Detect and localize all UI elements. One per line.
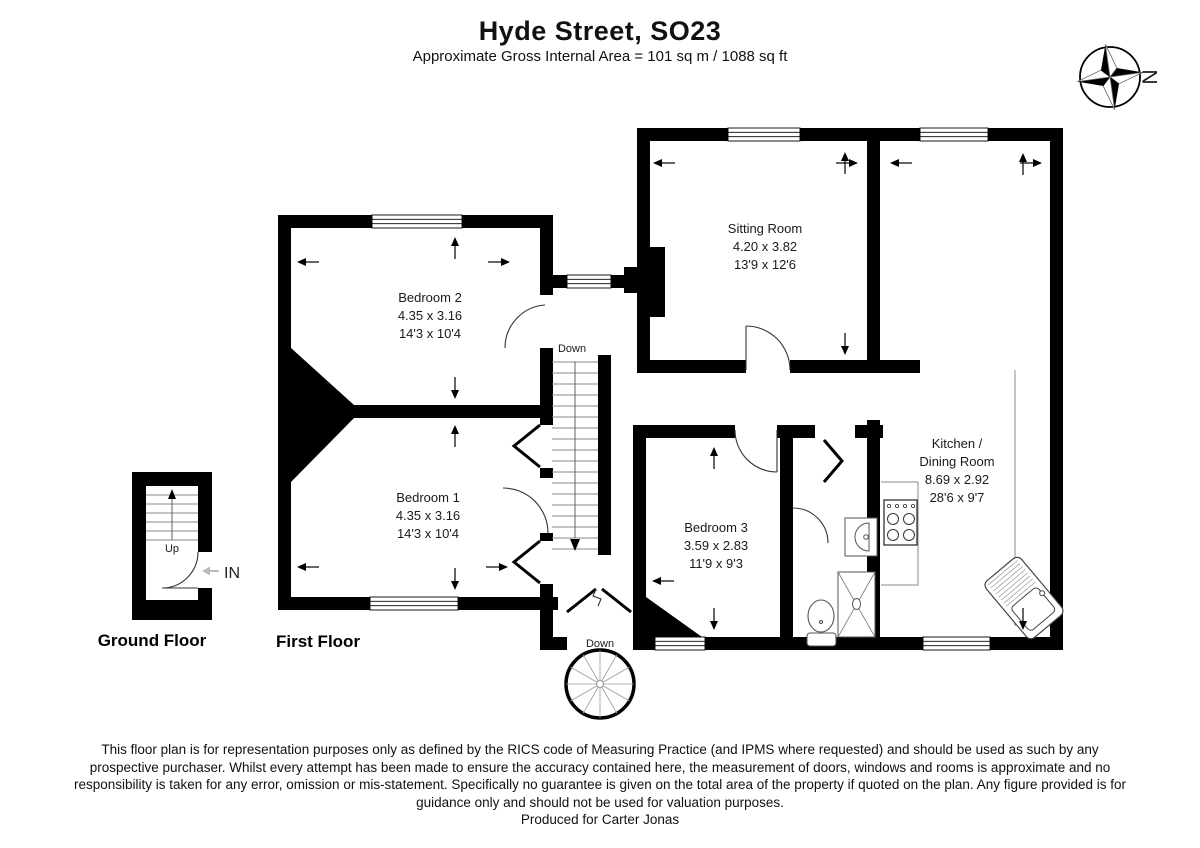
floorplan-page: Hyde Street, SO23 Approximate Gross Inte…	[0, 0, 1200, 848]
ground-stairs-up-label: Up	[165, 543, 179, 555]
window-icon	[567, 275, 611, 288]
measure-arrow-icon	[451, 237, 459, 259]
window-icon	[655, 637, 705, 650]
room-name-2: Dining Room	[919, 454, 994, 469]
floorplan-drawing: N Up IN Ground Floor	[0, 0, 1200, 848]
measure-arrow-icon	[451, 568, 459, 590]
room-imperial: 14'3 x 10'4	[397, 526, 459, 541]
bedroom2-door	[505, 305, 545, 348]
compass-icon: N	[1073, 40, 1161, 115]
wc-door	[793, 508, 828, 543]
window-icon	[923, 637, 990, 650]
entry-down-label: Down	[586, 638, 614, 650]
entrance-label: IN	[224, 565, 240, 582]
room-name: Bedroom 2	[398, 290, 462, 305]
measure-arrow-icon	[710, 447, 718, 469]
room-label-sitting-room: Sitting Room 4.20 x 3.82 13'9 x 12'6	[728, 221, 802, 272]
producer-text: Produced for Carter Jonas	[72, 811, 1128, 829]
room-label-bedroom-2: Bedroom 2 4.35 x 3.16 14'3 x 10'4	[398, 290, 462, 341]
stairs-down-label: Down	[558, 343, 586, 355]
room-metric: 8.69 x 2.92	[925, 472, 989, 487]
window-icon	[372, 215, 462, 228]
windows	[370, 128, 990, 650]
room-metric: 4.35 x 3.16	[398, 308, 462, 323]
first-floor-label: First Floor	[276, 632, 360, 651]
footer: This floor plan is for representation pu…	[72, 741, 1128, 829]
room-imperial: 28'6 x 9'7	[930, 490, 985, 505]
room-name: Bedroom 1	[396, 490, 460, 505]
measure-arrow-icon	[451, 425, 459, 447]
room-label-kitchen-dining: Kitchen / Dining Room 8.69 x 2.92 28'6 x…	[919, 436, 994, 505]
first-floor-walls	[278, 128, 1063, 650]
entrance-in-arrow-icon	[202, 567, 219, 576]
measure-arrow-icon	[841, 333, 849, 355]
room-metric: 4.20 x 3.82	[733, 239, 797, 254]
spiral-staircase	[566, 650, 634, 718]
room-name: Bedroom 3	[684, 520, 748, 535]
toilet-icon	[807, 600, 836, 646]
entrance-door	[162, 552, 198, 588]
room-metric: 3.59 x 2.83	[684, 538, 748, 553]
measure-arrow-icon	[890, 159, 912, 167]
shower-icon	[838, 572, 875, 637]
entry-double-doors	[567, 589, 631, 612]
disclaimer-text: This floor plan is for representation pu…	[72, 741, 1128, 811]
room-label-bedroom-1: Bedroom 1 4.35 x 3.16 14'3 x 10'4	[396, 490, 460, 541]
measure-arrow-icon	[451, 377, 459, 399]
measure-arrow-icon	[297, 563, 319, 571]
measure-arrow-icon	[653, 159, 675, 167]
room-name: Sitting Room	[728, 221, 802, 236]
room-imperial: 14'3 x 10'4	[399, 326, 461, 341]
window-icon	[370, 597, 458, 610]
room-imperial: 11'9 x 9'3	[689, 556, 743, 571]
room-imperial: 13'9 x 12'6	[734, 257, 796, 272]
measure-arrow-icon	[488, 258, 510, 266]
measure-arrow-icon	[486, 563, 508, 571]
sitting-room-door	[746, 326, 790, 370]
measure-arrow-icon	[652, 577, 674, 585]
washbasin-icon	[845, 518, 877, 556]
ground-floor-label: Ground Floor	[98, 631, 207, 650]
window-icon	[728, 128, 800, 141]
measure-arrow-icon	[710, 608, 718, 630]
measure-arrow-icon	[1019, 153, 1027, 175]
compass-north-label: N	[1138, 69, 1161, 84]
room-name: Kitchen /	[932, 436, 983, 451]
room-label-bedroom-3: Bedroom 3 3.59 x 2.83 11'9 x 9'3	[684, 520, 748, 571]
bedroom3-door	[735, 430, 777, 472]
window-icon	[920, 128, 988, 141]
bedroom1-door	[503, 488, 548, 533]
measure-arrow-icon	[297, 258, 319, 266]
hob-icon	[884, 500, 917, 545]
room-metric: 4.35 x 3.16	[396, 508, 460, 523]
ground-floor-plan: Up IN Ground Floor	[98, 472, 240, 650]
